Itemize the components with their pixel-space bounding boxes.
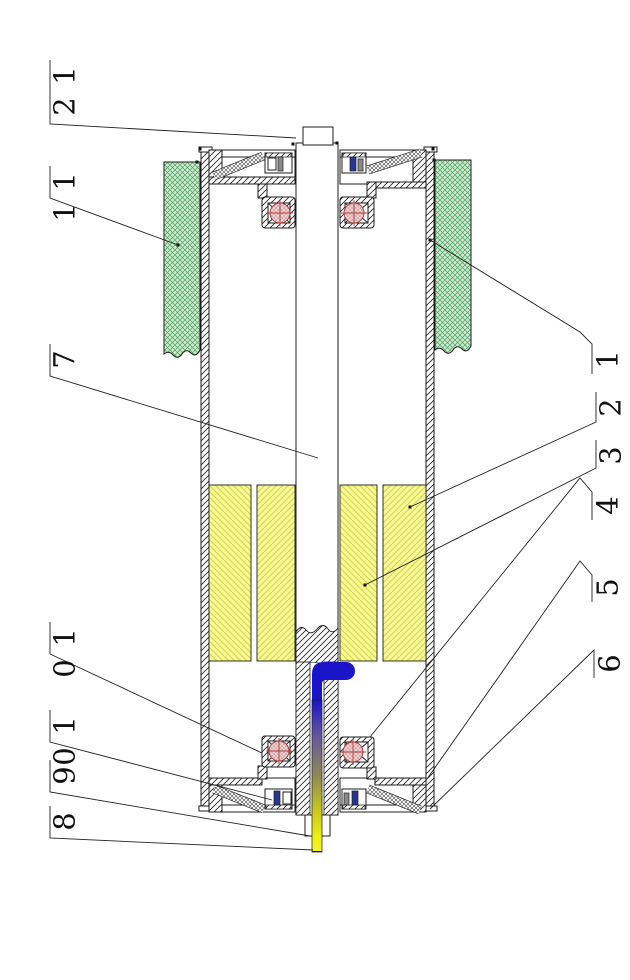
seal-upper-right-gray xyxy=(358,159,363,171)
tube-wall-left xyxy=(201,148,209,810)
stator-right-inner xyxy=(340,485,377,661)
upper-end-cap-right xyxy=(340,150,426,188)
seal-upper-left xyxy=(278,157,283,171)
upper-end-cap-left xyxy=(209,150,295,184)
shaft-wall-right-section xyxy=(324,662,338,815)
stator-left-outer xyxy=(209,485,251,661)
leader-line-6 xyxy=(430,650,594,809)
leader-line-2 xyxy=(410,392,596,507)
bearing-lower-right xyxy=(340,737,376,779)
shaft-top-end xyxy=(303,127,333,145)
seal-lower-left-blue xyxy=(274,791,280,805)
bearing-lower-left xyxy=(258,736,295,779)
seal-lower-left-strip xyxy=(266,805,291,809)
leader-line-7 xyxy=(50,344,318,458)
seal-upper-left-strip xyxy=(266,153,291,157)
leader-line-5 xyxy=(427,561,592,779)
stator-left-inner xyxy=(257,485,295,661)
seal-lower-right-blue xyxy=(352,791,358,805)
leader-line-11 xyxy=(50,166,178,245)
cross-section-drawing xyxy=(0,0,630,980)
bearing-upper-left xyxy=(258,184,295,228)
patent-figure: 12117101098123456 xyxy=(0,0,630,980)
shaft-wall-left-section xyxy=(296,662,310,815)
seal-lower-right-strip xyxy=(343,805,365,809)
seal-lower-right-gray xyxy=(344,793,349,805)
tube-wall-right xyxy=(426,148,434,810)
lower-end-cap-right xyxy=(340,778,426,812)
seal-upper-right-strip xyxy=(343,153,365,157)
cable-run xyxy=(312,700,322,852)
rubber-sleeve-right xyxy=(435,160,471,353)
leader-line-8 xyxy=(50,806,313,850)
seal-upper-right-blue xyxy=(350,157,356,171)
rubber-sleeve-left xyxy=(164,162,200,357)
bearing-upper-right xyxy=(340,182,376,228)
leader-line-12 xyxy=(50,60,296,138)
